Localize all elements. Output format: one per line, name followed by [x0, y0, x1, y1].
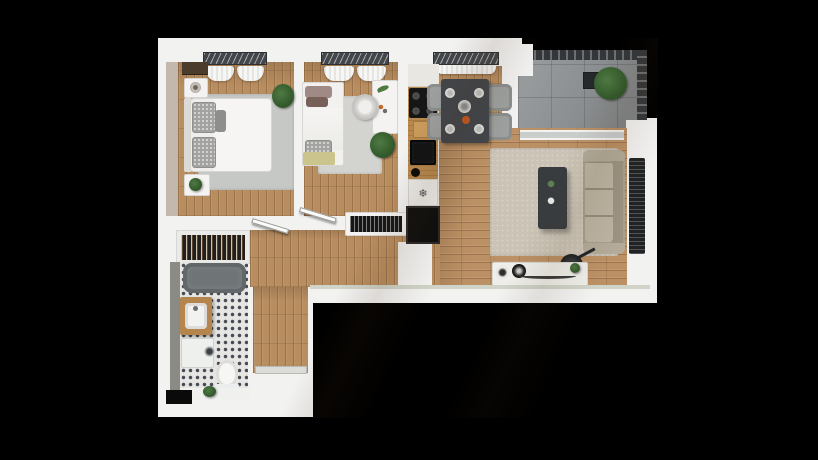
window-bedroom1 — [203, 52, 267, 65]
balcony-sliding-door-glass — [520, 130, 624, 140]
living-radiator — [629, 158, 645, 254]
bedroom1-wardrobe-top — [182, 62, 208, 75]
bathroom-wall-face — [170, 262, 180, 398]
curtain-bedroom2-right — [357, 66, 386, 81]
bathroom-faucet — [193, 306, 198, 311]
dining-plate-1 — [445, 88, 455, 98]
apartment-floor-plan: ❄ — [0, 0, 818, 460]
sofa — [583, 150, 625, 254]
toilet-bowl — [216, 360, 238, 387]
sofa-armrest-top — [583, 150, 625, 161]
kitchen-kettle — [411, 168, 420, 177]
bathroom-plant — [203, 386, 216, 397]
window-kitchen — [433, 52, 499, 65]
bedroom2-blanket-yellow — [303, 152, 335, 165]
tv-stand-plant — [570, 263, 580, 273]
entry-door — [255, 366, 307, 374]
bedroom1-wall-face — [166, 62, 178, 216]
bathtub — [183, 263, 246, 293]
washing-machine-door — [204, 346, 215, 357]
bedroom1-pillow-bottom — [192, 137, 216, 168]
kitchen-sink — [410, 140, 436, 165]
coffee-table-decor — [545, 180, 557, 206]
curtain-bedroom2-left — [324, 66, 354, 81]
tv-stand-speaker — [496, 266, 509, 279]
wall-niche — [166, 390, 192, 404]
freezer-snowflake-icon: ❄ — [418, 187, 427, 200]
bedroom2-desk-items — [378, 104, 388, 114]
sofa-seats — [585, 162, 613, 242]
curtain-kitchen-valance — [436, 65, 496, 74]
dining-chair-3 — [486, 84, 512, 111]
bedroom1-lamp — [190, 82, 201, 93]
wall-door-stub — [288, 216, 300, 230]
dining-food-item — [462, 116, 470, 124]
kitchen-tall-cabinet-black — [406, 206, 440, 244]
window-bedroom2 — [321, 52, 389, 65]
bedroom2-pillow-brown — [306, 97, 328, 107]
dining-plate-4 — [474, 124, 484, 134]
living-bottom-wall-edge — [310, 285, 650, 289]
bedroom1-accent-pillow — [215, 110, 226, 132]
dining-plate-2 — [474, 88, 484, 98]
hallway-sideboard-records — [350, 216, 402, 232]
bedroom2-plant — [370, 132, 395, 158]
entry-floor — [253, 287, 308, 373]
balcony-bush — [594, 67, 627, 100]
wall-below-kitchen-cabinet — [398, 242, 432, 290]
dining-center-bowl — [458, 100, 471, 113]
bedroom1-pillow-top — [192, 102, 216, 133]
dining-chair-4 — [486, 113, 512, 140]
curtain-bedroom1-left — [206, 66, 234, 81]
wall-bedroom1-bottom — [158, 216, 252, 230]
bedroom1-corner-plant — [272, 84, 294, 108]
dining-plate-3 — [445, 124, 455, 134]
bedroom1-nightstand-plant — [189, 178, 202, 191]
closet-hanging-clothes — [181, 235, 245, 260]
bedroom2-chair — [352, 94, 378, 120]
kitchen-freezer: ❄ — [408, 179, 438, 206]
